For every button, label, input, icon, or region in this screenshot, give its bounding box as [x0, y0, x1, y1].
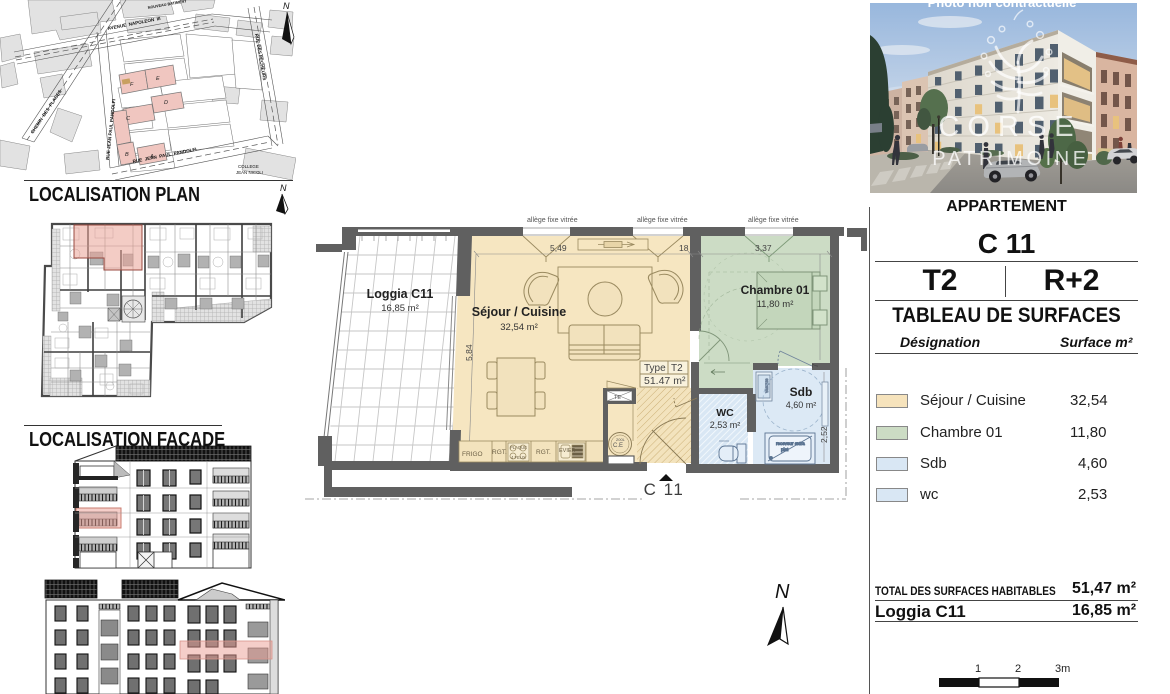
svg-text:Sdb: Sdb — [790, 385, 813, 399]
svg-text:4 FEUX: 4 FEUX — [511, 455, 526, 460]
svg-text:FRIGO: FRIGO — [462, 451, 483, 458]
svg-text:51.47 m²: 51.47 m² — [644, 375, 686, 387]
svg-text:CORSE: CORSE — [938, 111, 1081, 143]
svg-text:11,80 m²: 11,80 m² — [757, 299, 794, 310]
svg-text:WC: WC — [716, 407, 734, 419]
svg-text:allège fixe vitrée: allège fixe vitrée — [527, 217, 578, 224]
svg-text:200L: 200L — [616, 437, 626, 442]
svg-text:PATRIMOINE: PATRIMOINE — [932, 148, 1089, 170]
svg-text:TE: TE — [614, 395, 621, 401]
svg-text:2,52: 2,52 — [819, 426, 829, 443]
svg-text:2: 2 — [1015, 663, 1021, 675]
svg-text:Photo non contractuelle: Photo non contractuelle — [928, 0, 1077, 10]
svg-text:RGT.: RGT. — [536, 449, 551, 456]
svg-text:32,54 m²: 32,54 m² — [500, 322, 538, 333]
svg-text:16,85 m²: 16,85 m² — [381, 303, 419, 314]
svg-text:Loggia C11: Loggia C11 — [367, 287, 434, 301]
svg-text:allège fixe vitrée: allège fixe vitrée — [637, 217, 688, 224]
svg-text:N: N — [775, 581, 790, 603]
svg-text:C: C — [126, 116, 130, 122]
svg-text:2,53 m²: 2,53 m² — [710, 420, 741, 430]
svg-text:B: B — [125, 152, 129, 158]
svg-text:E: E — [156, 76, 160, 82]
svg-text:5,84: 5,84 — [464, 344, 474, 361]
svg-text:JEAN NICOLI: JEAN NICOLI — [236, 170, 263, 175]
svg-text:3,37: 3,37 — [755, 243, 772, 253]
svg-text:18: 18 — [679, 243, 689, 253]
svg-text:EVIER: EVIER — [559, 448, 576, 454]
svg-text:3m: 3m — [1055, 663, 1070, 675]
svg-text:Séjour / Cuisine: Séjour / Cuisine — [472, 305, 567, 319]
svg-text:RGT.: RGT. — [492, 449, 507, 456]
svg-text:allège fixe vitrée: allège fixe vitrée — [748, 217, 799, 224]
svg-text:T2: T2 — [671, 363, 683, 374]
svg-text:plat: plat — [781, 447, 789, 452]
svg-text:N: N — [280, 183, 287, 193]
svg-text:COLLEGE: COLLEGE — [238, 164, 259, 169]
svg-text:PLAQUE: PLAQUE — [510, 445, 527, 450]
svg-text:C 11: C 11 — [644, 480, 685, 499]
svg-text:Type: Type — [644, 363, 666, 374]
svg-text:Chambre 01: Chambre 01 — [741, 283, 810, 297]
svg-text:D: D — [164, 100, 168, 106]
svg-text:N: N — [283, 1, 290, 11]
svg-text:4,60 m²: 4,60 m² — [786, 400, 817, 410]
svg-text:1: 1 — [975, 663, 981, 675]
svg-text:C.E: C.E — [613, 443, 623, 449]
svg-text:receveur extra: receveur extra — [776, 441, 805, 446]
svg-text:5,49: 5,49 — [550, 243, 567, 253]
